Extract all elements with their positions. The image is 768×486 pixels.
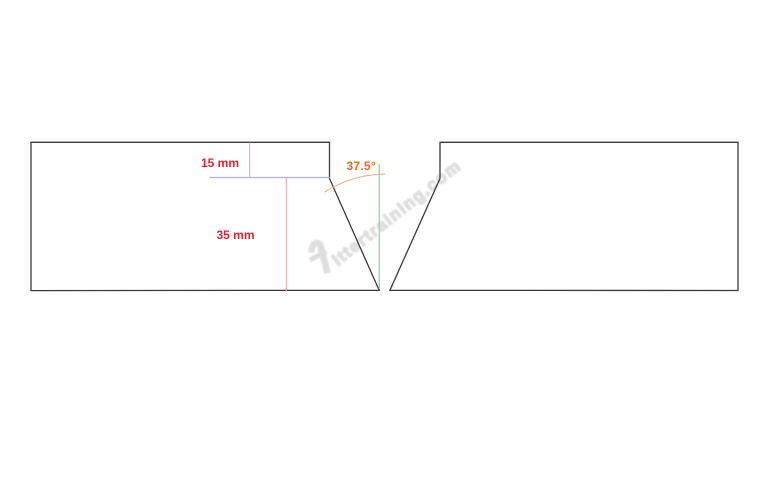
svg-text:37.5°: 37.5° <box>347 159 376 173</box>
svg-text:15 mm: 15 mm <box>201 156 239 170</box>
svg-text:35 mm: 35 mm <box>217 228 255 242</box>
